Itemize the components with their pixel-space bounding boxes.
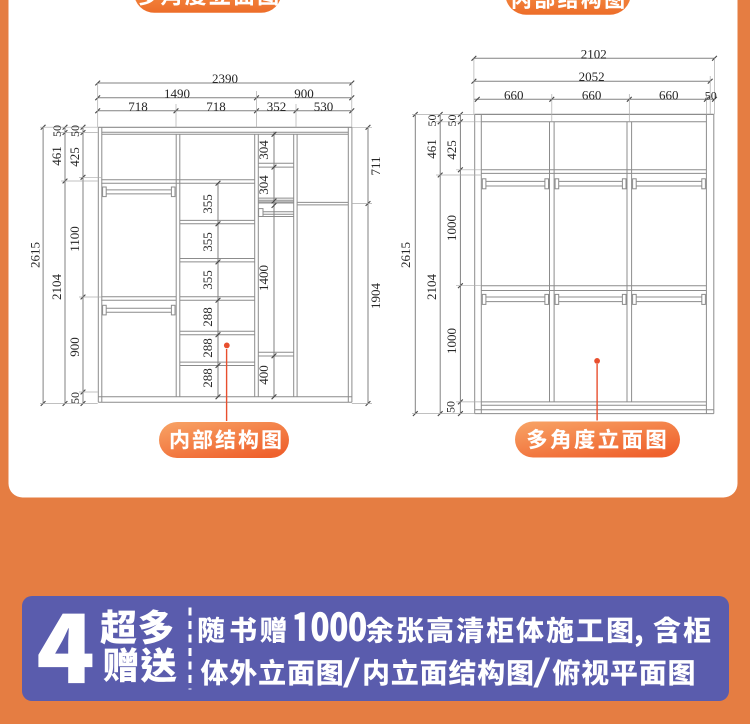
svg-text:900: 900 [294, 86, 314, 101]
svg-text:2104: 2104 [424, 274, 439, 301]
svg-text:355: 355 [200, 232, 215, 252]
svg-text:711: 711 [368, 156, 383, 175]
svg-text:288: 288 [200, 338, 215, 358]
svg-text:352: 352 [267, 99, 287, 114]
svg-text:2052: 2052 [579, 69, 605, 84]
svg-text:660: 660 [504, 87, 524, 102]
svg-text:50: 50 [445, 115, 459, 127]
svg-text:355: 355 [200, 270, 215, 290]
svg-text:288: 288 [200, 368, 215, 388]
svg-text:304: 304 [256, 140, 271, 160]
svg-text:355: 355 [200, 194, 215, 214]
svg-text:1100: 1100 [67, 226, 82, 252]
svg-text:2615: 2615 [398, 242, 413, 268]
svg-text:288: 288 [200, 307, 215, 327]
svg-text:425: 425 [444, 140, 459, 160]
svg-text:718: 718 [206, 99, 226, 114]
svg-text:660: 660 [659, 87, 679, 102]
svg-text:1904: 1904 [368, 283, 383, 310]
svg-text:2615: 2615 [28, 242, 43, 268]
svg-text:660: 660 [582, 87, 602, 102]
svg-text:461: 461 [424, 139, 439, 159]
svg-text:1000: 1000 [444, 215, 459, 241]
svg-text:2390: 2390 [212, 71, 238, 86]
svg-text:50: 50 [68, 125, 82, 137]
svg-text:718: 718 [128, 99, 148, 114]
svg-text:50: 50 [50, 125, 64, 137]
svg-text:50: 50 [444, 401, 458, 413]
svg-text:2104: 2104 [49, 274, 64, 301]
svg-text:461: 461 [49, 146, 64, 166]
svg-text:425: 425 [67, 147, 82, 167]
svg-text:1400: 1400 [256, 265, 271, 291]
svg-text:304: 304 [256, 175, 271, 195]
svg-text:1490: 1490 [164, 86, 190, 101]
svg-text:900: 900 [67, 337, 82, 357]
svg-text:2102: 2102 [581, 46, 607, 61]
svg-text:1000: 1000 [444, 328, 459, 354]
svg-text:50: 50 [425, 115, 439, 127]
svg-text:50: 50 [705, 88, 717, 102]
svg-text:530: 530 [314, 99, 334, 114]
svg-text:50: 50 [68, 392, 82, 404]
svg-text:400: 400 [256, 365, 271, 385]
